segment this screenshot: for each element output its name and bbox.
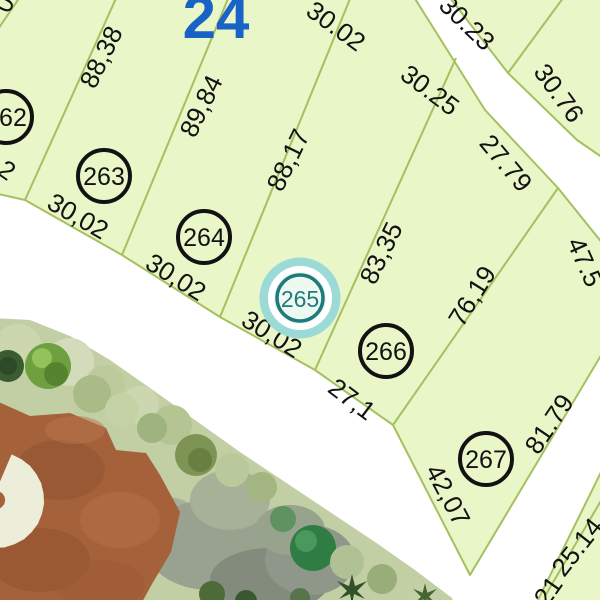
tree	[215, 453, 249, 487]
tree	[188, 448, 212, 472]
tree	[295, 530, 317, 552]
tree	[137, 413, 167, 443]
tree	[270, 506, 296, 532]
lot-263-number: 263	[83, 163, 125, 191]
dirt-light	[45, 416, 105, 444]
tree	[247, 472, 277, 502]
plot-map-screenshot: 2 30,02 30,02 30,02 27,1 88,38 89,84 88,…	[0, 0, 600, 600]
lot-265-number: 265	[281, 286, 319, 312]
tree	[330, 545, 364, 579]
subdivision-map: 2 30,02 30,02 30,02 27,1 88,38 89,84 88,…	[0, 0, 600, 600]
lot-266-number: 266	[365, 338, 407, 366]
dirt-light	[80, 492, 160, 548]
tree	[105, 393, 139, 427]
tree	[44, 362, 68, 386]
tree	[367, 564, 397, 594]
block-number: 24	[183, 0, 250, 51]
lot-265-marker-selected[interactable]: 265	[264, 262, 336, 334]
lot-267-number: 267	[465, 446, 507, 474]
lot-264-number: 264	[183, 224, 225, 252]
lot-262-number: 262	[0, 104, 27, 132]
